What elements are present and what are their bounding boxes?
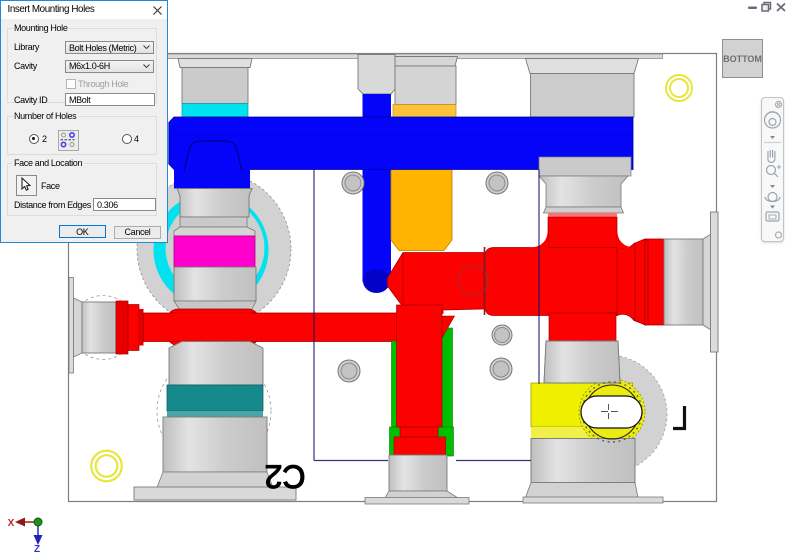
- svg-text:C2: C2: [265, 459, 306, 495]
- svg-text:Z: Z: [34, 544, 40, 555]
- svg-text:X: X: [8, 518, 15, 529]
